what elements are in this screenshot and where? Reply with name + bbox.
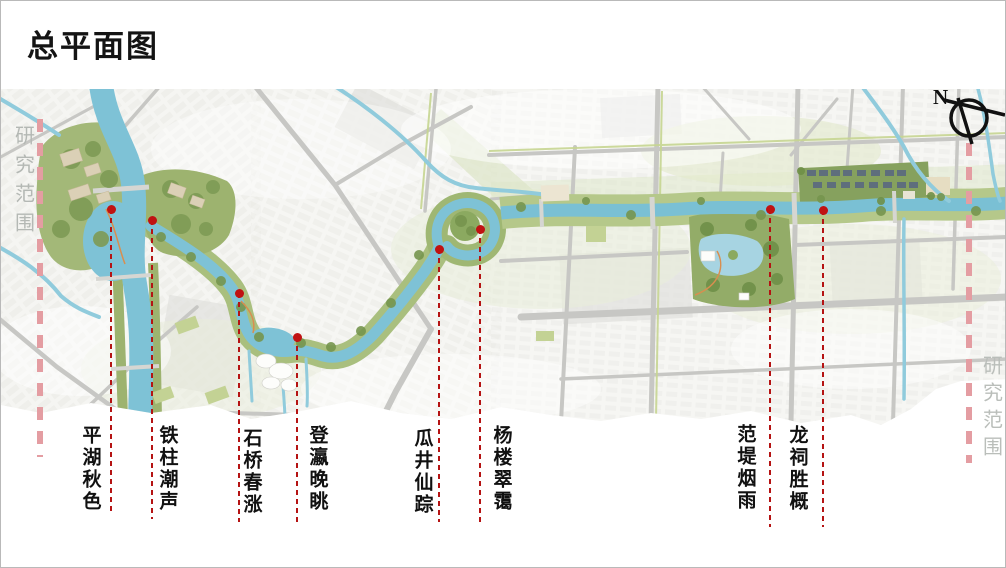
north-compass-icon: N <box>926 81 1006 161</box>
landmark-dot-1 <box>107 205 116 214</box>
landmark-dot-3 <box>235 289 244 298</box>
landmark-label-5: 瓜井仙踪 <box>409 428 436 516</box>
landmark-line-7 <box>769 209 771 527</box>
compass-north-label: N <box>933 85 948 109</box>
landmark-label-4: 登瀛晚眺 <box>304 425 331 513</box>
landmark-line-1 <box>110 209 112 515</box>
landmark-label-6: 杨楼翠霭 <box>488 425 515 513</box>
landmark-dot-2 <box>148 216 157 225</box>
landmark-label-3: 石桥春涨 <box>238 428 265 516</box>
landmark-dot-7 <box>766 205 775 214</box>
landmark-line-8 <box>822 210 824 527</box>
landmark-label-2: 铁柱潮声 <box>154 425 181 513</box>
landmark-dot-8 <box>819 206 828 215</box>
study-boundary-line-left <box>37 119 43 457</box>
landmark-line-5 <box>438 249 440 522</box>
landmark-label-7: 范堤烟雨 <box>732 424 759 512</box>
master-plan-slide: 总平面图 <box>0 0 1006 568</box>
study-area-label-left: 研究范围 <box>9 125 38 241</box>
landmark-label-1: 平湖秋色 <box>77 425 104 513</box>
landmark-dot-5 <box>435 245 444 254</box>
landmark-line-6 <box>479 229 481 522</box>
landmark-dot-6 <box>476 225 485 234</box>
page-title: 总平面图 <box>27 21 159 66</box>
landmark-line-4 <box>296 337 298 522</box>
study-area-label-right: 研究范围 <box>977 355 1006 463</box>
landmark-dot-4 <box>293 333 302 342</box>
study-boundary-line-right <box>966 143 972 463</box>
landmark-label-8: 龙祠胜概 <box>784 425 811 513</box>
